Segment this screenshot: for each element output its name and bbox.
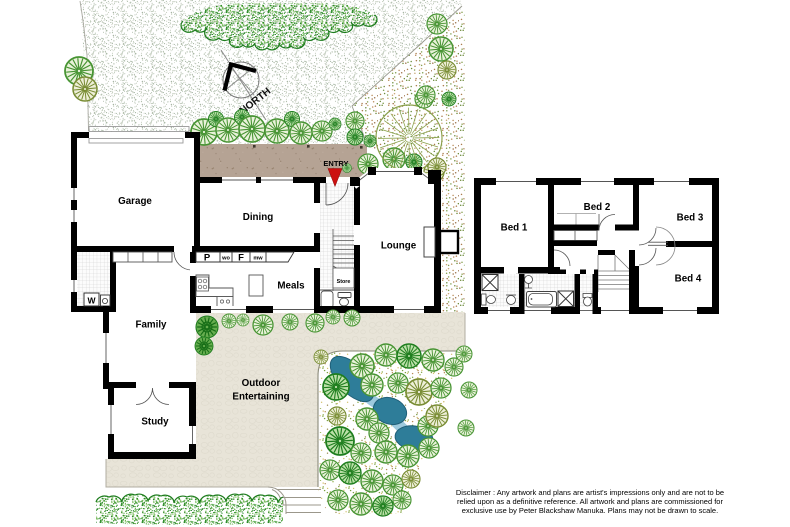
svg-text:Disclaimer : Any artwork and p: Disclaimer : Any artwork and plans are a… [456,488,724,497]
svg-text:Bed 2: Bed 2 [584,202,611,213]
svg-text:Bed 3: Bed 3 [677,213,704,224]
svg-text:Bed 4: Bed 4 [675,274,702,285]
svg-text:wo: wo [221,256,230,262]
svg-text:Store: Store [337,279,351,285]
svg-text:exclusive use by Peter Blacksh: exclusive use by Peter Blackshaw Manuka.… [462,506,718,515]
svg-text:Meals: Meals [277,281,305,292]
svg-text:Entertaining: Entertaining [232,392,289,403]
svg-text:Garage: Garage [118,196,152,207]
svg-text:Dining: Dining [243,212,273,223]
svg-text:Lounge: Lounge [381,241,417,252]
svg-text:Study: Study [141,417,169,428]
svg-text:relied upon as a definitive re: relied upon as a definitive reference. A… [457,497,723,506]
svg-text:Outdoor: Outdoor [242,378,281,389]
svg-text:mw: mw [253,256,263,262]
svg-text:Bed 1: Bed 1 [501,223,528,234]
svg-text:P: P [204,253,211,264]
svg-text:F: F [238,253,244,264]
svg-text:ENTRY: ENTRY [323,159,348,168]
svg-text:W: W [87,296,96,306]
svg-text:Family: Family [135,320,167,331]
